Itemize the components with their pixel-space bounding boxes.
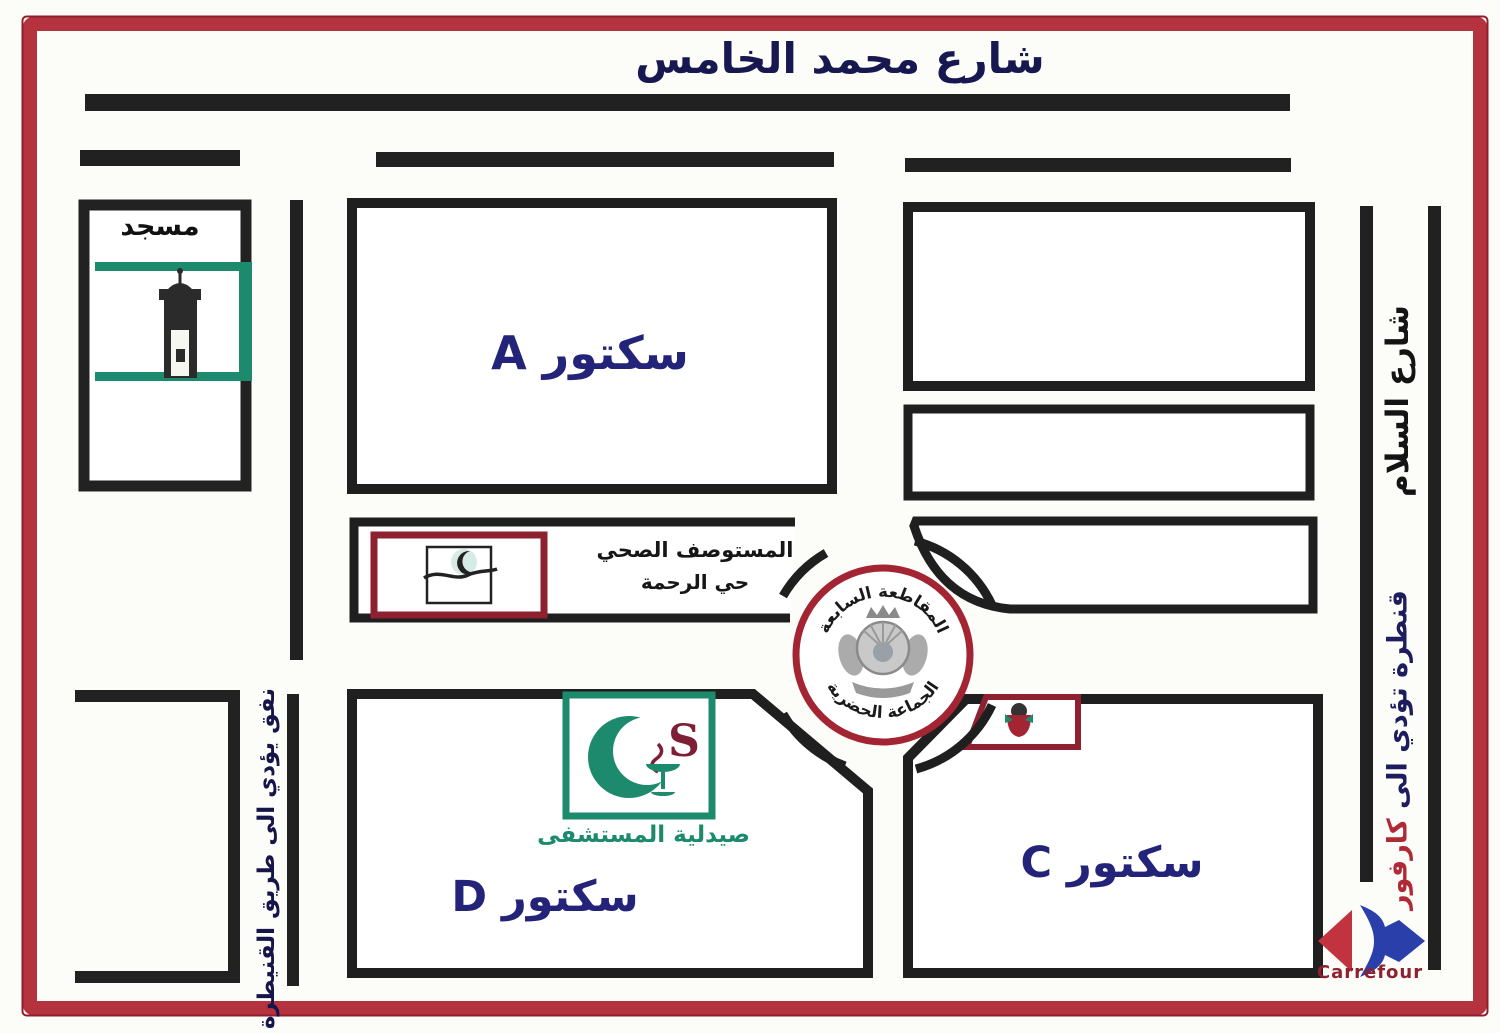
mosque-green-edge: [239, 262, 252, 381]
bridge-destination: كارفور: [1383, 818, 1414, 910]
road-bar-middle: [376, 152, 834, 167]
tunnel-street-divider-top: [290, 200, 303, 660]
mosque-label: مسجد: [105, 211, 215, 242]
health-center-line1: المستوصف الصحي: [580, 534, 810, 567]
salam-street-label: شارع السلام: [1380, 246, 1416, 556]
bottom-left-block: [75, 696, 234, 977]
bridge-text: قنطرة تؤدي الى: [1383, 590, 1414, 818]
pharmacy-s-letter: S: [668, 716, 700, 767]
sector-d-label: سكتور D: [385, 872, 705, 922]
main-street-road: [85, 94, 1290, 111]
road-bar-right: [905, 158, 1291, 172]
carrefour-brand-text: Carrefour: [1310, 962, 1430, 983]
right-block-2: [908, 409, 1310, 496]
health-center-label: المستوصف الصحي حي الرحمة: [580, 534, 810, 598]
right-block-1: [908, 207, 1310, 386]
right-strip-block: [914, 521, 1313, 609]
health-center-line2: حي الرحمة: [580, 567, 810, 598]
mosque-green-line-top: [95, 262, 241, 271]
road-bar-left: [80, 150, 240, 166]
scanned-district-map: المقاطعة السابعة الجماعة الحضرية S: [0, 0, 1500, 1033]
tunnel-street-divider-bottom: [287, 694, 299, 986]
pharmacy-label: صيدلية المستشفى: [540, 822, 750, 848]
main-street-title: شارع محمد الخامس: [540, 34, 1140, 83]
salam-street-left-edge: [1360, 206, 1373, 882]
sector-a-label: سكتور A: [430, 326, 750, 380]
salam-street-right-edge: [1428, 206, 1441, 970]
map-graphics: المقاطعة السابعة الجماعة الحضرية S: [0, 0, 1500, 1033]
tunnel-to-kenitra-label: نفق يؤدي الى طريق القنيطرة: [251, 688, 283, 988]
bridge-to-carrefour-label: قنطرة تؤدي الى كارفور: [1382, 558, 1416, 943]
sector-c-label: سكتور C: [952, 838, 1272, 888]
